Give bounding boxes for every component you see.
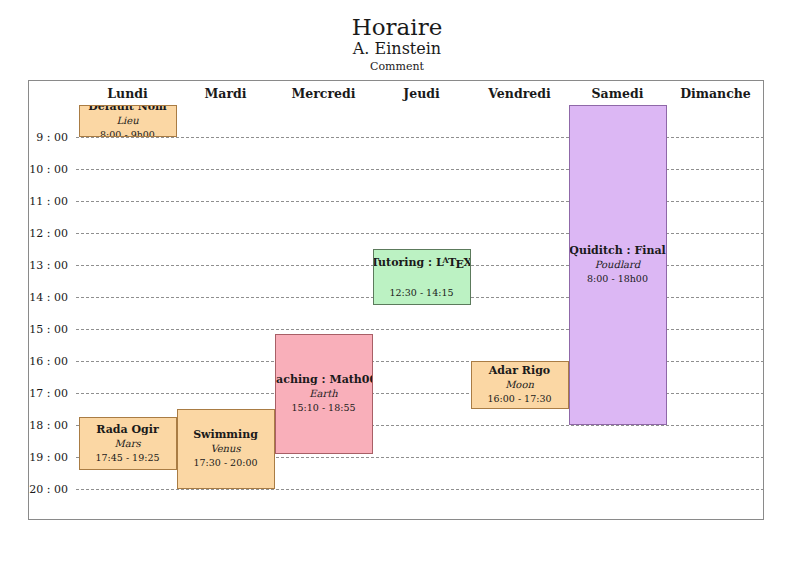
- event-title: Quiditch : Final: [569, 244, 665, 258]
- event-time: 16:00 - 17:30: [487, 392, 551, 406]
- event-location: Earth: [309, 387, 338, 401]
- event-location: Moon: [505, 378, 534, 392]
- page-author: A. Einstein: [0, 40, 794, 58]
- hour-label: 16 : 00: [22, 355, 68, 368]
- title-block: Horaire A. Einstein Comment: [0, 14, 794, 73]
- event-time: 15:10 - 18:55: [291, 401, 355, 415]
- event-title: Swimming: [193, 428, 258, 442]
- event-title: Teaching : Math007: [275, 373, 373, 387]
- event-location: Poudlard: [595, 258, 641, 272]
- event-default-nom: Default Nom Lieu 8:00 - 9h00: [79, 105, 177, 137]
- hour-label: 11 : 00: [22, 195, 68, 208]
- day-header-dimanche: Dimanche: [667, 86, 765, 101]
- event-time: 12:30 - 14:15: [389, 286, 453, 300]
- day-header-vendredi: Vendredi: [471, 86, 569, 101]
- hour-label: 10 : 00: [22, 163, 68, 176]
- hour-label: 18 : 00: [22, 419, 68, 432]
- hour-label: 13 : 00: [22, 259, 68, 272]
- event-time: 17:45 - 19:25: [95, 451, 159, 465]
- day-header-jeudi: Jeudi: [373, 86, 471, 101]
- event-title: Rada Ogir: [96, 423, 158, 437]
- event-quiditch-final: Quiditch : Final Poudlard 8:00 - 18h00: [569, 105, 667, 425]
- hour-label: 17 : 00: [22, 387, 68, 400]
- page-title: Horaire: [0, 14, 794, 40]
- event-title: Adar Rigo: [489, 364, 550, 378]
- hour-label: 14 : 00: [22, 291, 68, 304]
- timetable-page: Horaire A. Einstein Comment LundiMardiMe…: [0, 0, 794, 561]
- event-time: 17:30 - 20:00: [193, 456, 257, 470]
- hour-label: 19 : 00: [22, 451, 68, 464]
- hour-label: 12 : 00: [22, 227, 68, 240]
- hour-label: 9 : 00: [22, 131, 68, 144]
- day-header-mardi: Mardi: [177, 86, 275, 101]
- page-comment: Comment: [0, 61, 794, 74]
- event-teaching-math007: Teaching : Math007 Earth 15:10 - 18:55: [275, 334, 373, 454]
- event-adar-rigo: Adar Rigo Moon 16:00 - 17:30: [471, 361, 569, 409]
- event-time: 8:00 - 9h00: [100, 128, 155, 137]
- event-title: Default Nom: [88, 105, 167, 114]
- event-location: Venus: [210, 442, 240, 456]
- event-location: Mars: [114, 437, 140, 451]
- event-time: 8:00 - 18h00: [587, 272, 648, 286]
- event-rada-ogir: Rada Ogir Mars 17:45 - 19:25: [79, 417, 177, 470]
- event-tutoring-latex: Tutoring : LATEX 12:30 - 14:15: [373, 249, 471, 305]
- event-swimming: Swimming Venus 17:30 - 20:00: [177, 409, 275, 489]
- hour-label: 15 : 00: [22, 323, 68, 336]
- hour-gridline: [76, 489, 764, 490]
- day-header-mercredi: Mercredi: [275, 86, 373, 101]
- hour-label: 20 : 00: [22, 483, 68, 496]
- event-location: Lieu: [116, 114, 138, 128]
- day-header-samedi: Samedi: [569, 86, 667, 101]
- event-title: Tutoring : LATEX: [373, 254, 471, 272]
- day-header-lundi: Lundi: [79, 86, 177, 101]
